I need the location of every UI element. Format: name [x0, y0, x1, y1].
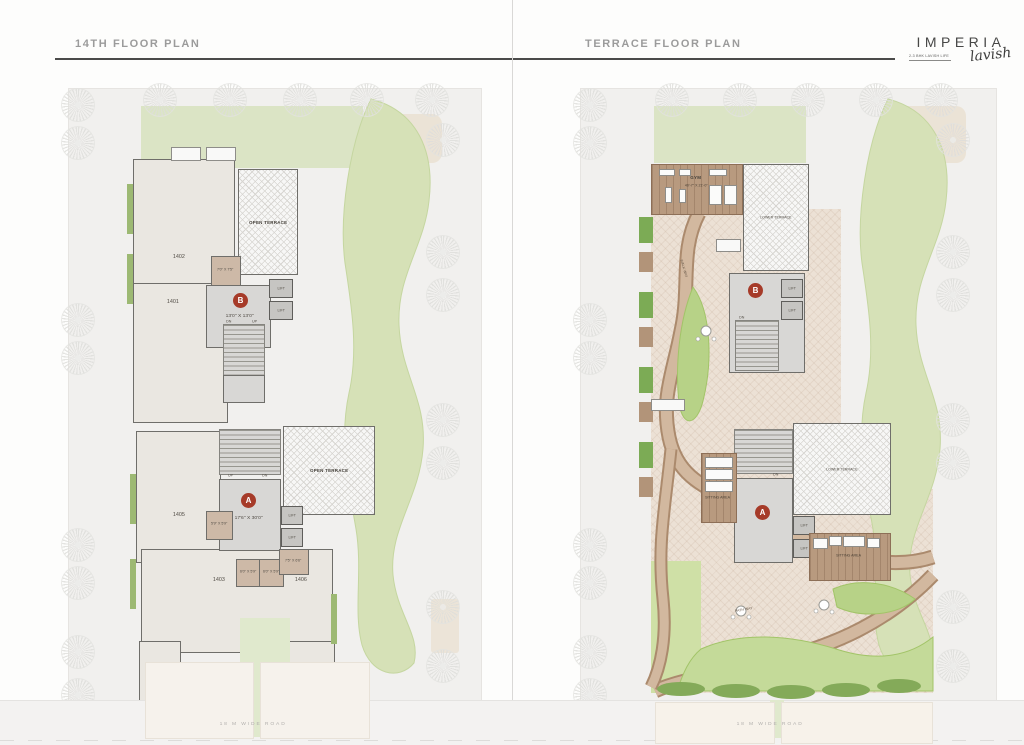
- tree-icon: [655, 83, 689, 117]
- tree-icon: [573, 126, 607, 160]
- tree-icon: [61, 635, 95, 669]
- bench: [716, 239, 741, 252]
- sofa-icon: [829, 536, 842, 546]
- brand-tagline: 2-3 BHK LAVISH LIFE: [909, 54, 949, 58]
- tree-icon: [936, 235, 970, 269]
- gym-dims: 40'-7" X 21'-0": [651, 181, 741, 190]
- open-terrace-a: OPEN TERRACE: [283, 426, 375, 515]
- block-b-badge: B: [233, 293, 248, 308]
- tree-icon: [573, 566, 607, 600]
- planter: [130, 474, 136, 524]
- hedge-bush: [877, 679, 921, 693]
- tree-icon: [426, 235, 460, 269]
- tree-icon: [936, 590, 970, 624]
- lift-a2: LIFT: [281, 528, 303, 547]
- sitting-area-right-label: SITTING AREA: [809, 551, 889, 560]
- stairs-b: [735, 320, 779, 371]
- tree-icon: [143, 83, 177, 117]
- tree-icon: [61, 88, 95, 122]
- lower-terrace-a: LOWER TERRACE: [793, 423, 891, 515]
- road-label-left: 18 M WIDE ROAD: [128, 719, 378, 728]
- tree-icon: [350, 83, 384, 117]
- hedge-bush: [822, 683, 870, 697]
- brand-logo: IMPERIA 2-3 BHK LAVISH LIFE lavish: [903, 34, 1019, 73]
- unit-1402-label: 1402: [154, 252, 204, 261]
- lift-b2: LIFT: [269, 301, 293, 320]
- unit-1406-label: 1406: [276, 575, 326, 584]
- tree-icon: [936, 649, 970, 683]
- site-terrace: GYM 40'-7" X 21'-0" LOWER TERRACE B LIFT…: [580, 88, 997, 702]
- tree-icon: [426, 123, 460, 157]
- lower-terrace-b-label: LOWER TERRACE: [760, 215, 791, 219]
- brand-script: lavish: [969, 45, 1012, 65]
- sofa-icon: [813, 538, 828, 549]
- tree-icon: [283, 83, 317, 117]
- tree-icon: [61, 528, 95, 562]
- lift-label: LIFT: [288, 513, 295, 517]
- planter: [331, 594, 337, 644]
- unit-1405-label: 1405: [154, 510, 204, 519]
- store-room-b-dims: 7'0" X 7'5": [209, 265, 241, 274]
- open-terrace-b-label: OPEN TERRACE: [249, 219, 287, 224]
- lift-label: LIFT: [788, 308, 795, 312]
- planter: [130, 559, 136, 609]
- gym-equipment-icon: [679, 189, 686, 203]
- tree-icon: [426, 278, 460, 312]
- brochure-page: 14TH FLOOR PLAN TERRACE FLOOR PLAN IMPER…: [0, 0, 1024, 745]
- tree-icon: [426, 403, 460, 437]
- tree-icon: [924, 83, 958, 117]
- lower-terrace-a-label: LOWER TERRACE: [826, 467, 857, 471]
- right-plan-title: TERRACE FLOOR PLAN: [585, 38, 742, 50]
- planter: [127, 184, 133, 234]
- lower-terrace-b: LOWER TERRACE: [743, 164, 809, 271]
- tree-icon: [936, 278, 970, 312]
- tree-icon: [426, 446, 460, 480]
- tree-icon: [426, 649, 460, 683]
- unit-block-1405: [136, 431, 221, 563]
- patio-table-set: [814, 600, 834, 614]
- tree-icon: [859, 83, 893, 117]
- store-room-a-dims: 5'9" X 5'9": [203, 519, 235, 528]
- lounger-icon: [705, 457, 733, 468]
- hedge-bush: [712, 684, 760, 698]
- balcony: [171, 147, 201, 161]
- core-b-landing: [223, 375, 265, 403]
- lift-label: LIFT: [800, 523, 807, 527]
- header-rule-right: [512, 58, 895, 60]
- core-a: [734, 478, 793, 563]
- tree-icon: [61, 566, 95, 600]
- lift-label: LIFT: [800, 546, 807, 550]
- bench: [651, 399, 685, 411]
- sofa-icon: [843, 536, 865, 547]
- stairs-a: [734, 429, 793, 474]
- open-terrace-a-label: OPEN TERRACE: [310, 468, 348, 473]
- left-plan-title: 14TH FLOOR PLAN: [75, 38, 200, 50]
- block-b-dims: 13'0" X 13'0": [200, 311, 280, 320]
- unit-1401-label: 1401: [148, 297, 198, 306]
- unit-1403-label: 1403: [194, 575, 244, 584]
- lift-a1: LIFT: [281, 506, 303, 525]
- hedge-bush: [657, 682, 705, 696]
- tree-icon: [573, 341, 607, 375]
- tree-icon: [936, 403, 970, 437]
- site-floor14: OPEN TERRACE 7'0" X 7'5" B 13'0" X 13'0"…: [68, 88, 482, 702]
- open-terrace-b: OPEN TERRACE: [238, 169, 298, 275]
- stairs-b: [223, 324, 265, 377]
- tree-icon: [791, 83, 825, 117]
- lift-b1: LIFT: [269, 279, 293, 298]
- stairs-a: [219, 429, 281, 475]
- planter: [127, 254, 133, 304]
- logo-rule: [909, 60, 951, 61]
- tree-icon: [573, 303, 607, 337]
- tree-icon: [936, 446, 970, 480]
- logo-subline: 2-3 BHK LAVISH LIFE lavish: [903, 51, 1019, 73]
- tree-icon: [415, 83, 449, 117]
- header-rule-left: [55, 58, 512, 60]
- lift-b2: LIFT: [781, 301, 803, 320]
- garden-blob: [343, 99, 430, 673]
- lounger-icon: [705, 481, 733, 492]
- lounger-icon: [705, 469, 733, 480]
- sofa-icon: [867, 538, 880, 548]
- block-a-badge: A: [241, 493, 256, 508]
- sitting-area-left-label: SITTING AREA: [685, 493, 751, 502]
- lift-label: LIFT: [288, 535, 295, 539]
- balcony: [206, 147, 236, 161]
- tree-icon: [213, 83, 247, 117]
- block-a-badge: A: [755, 505, 770, 520]
- lift-b1: LIFT: [781, 279, 803, 298]
- tree-icon: [573, 635, 607, 669]
- tree-icon: [61, 303, 95, 337]
- tree-icon: [61, 341, 95, 375]
- tree-icon: [723, 83, 757, 117]
- panel-divider: [512, 0, 513, 745]
- tree-icon: [573, 88, 607, 122]
- block-b-badge: B: [748, 283, 763, 298]
- lift-label: LIFT: [277, 308, 284, 312]
- tree-icon: [426, 590, 460, 624]
- tree-icon: [61, 126, 95, 160]
- road-label-right: 18 M WIDE ROAD: [645, 719, 895, 728]
- store-right-dims: 7'5" X 6'6": [277, 556, 309, 565]
- lift-label: LIFT: [277, 286, 284, 290]
- tree-icon: [936, 123, 970, 157]
- tree-icon: [573, 528, 607, 562]
- lift-label: LIFT: [788, 286, 795, 290]
- hedge-bush: [767, 685, 815, 699]
